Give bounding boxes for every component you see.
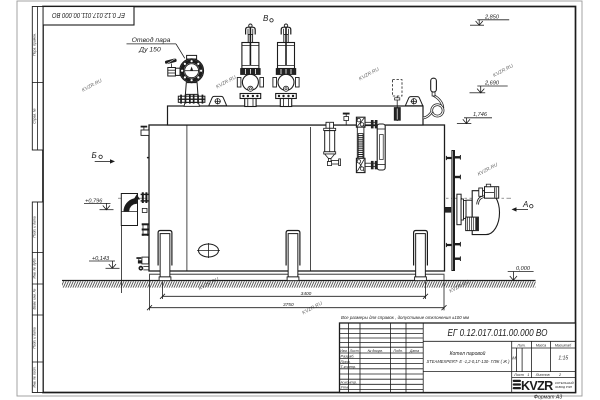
svg-text:3750: 3750 <box>283 302 294 308</box>
svg-text:Подп.: Подп. <box>394 349 403 353</box>
svg-text:1:15: 1:15 <box>558 355 568 361</box>
svg-text:М: М <box>512 356 516 361</box>
svg-text:Листов: Листов <box>535 373 550 377</box>
svg-text:Отвод пара: Отвод пара <box>132 36 171 44</box>
svg-text:Утв.: Утв. <box>341 385 350 390</box>
svg-text:А: А <box>522 200 528 209</box>
svg-text:Т.контр.: Т.контр. <box>341 364 357 369</box>
svg-text:1,746: 1,746 <box>473 112 488 118</box>
svg-text:Перв. примен.: Перв. примен. <box>33 33 37 56</box>
svg-text:Все размеры для справок , допу: Все размеры для справок , допустимые отк… <box>341 315 470 320</box>
svg-text:Лит.: Лит. <box>516 343 525 347</box>
svg-text:Инв. № дубл.: Инв. № дубл. <box>33 258 37 279</box>
svg-text:Лист: Лист <box>513 373 524 377</box>
svg-text:Ду 150: Ду 150 <box>138 47 161 54</box>
svg-text:Изм.: Изм. <box>340 349 347 353</box>
svg-text:В: В <box>263 14 269 23</box>
svg-text:ЕГ 0.12.017.011.00.000 ВО: ЕГ 0.12.017.011.00.000 ВО <box>52 11 125 20</box>
svg-text:STEAMEXPERT- Е -1,2-0,1Г-130-: STEAMEXPERT- Е -1,2-0,1Г-130- ГЛЖ ( Ж ) <box>427 359 510 365</box>
svg-text:Взам. инв. №: Взам. инв. № <box>33 288 37 309</box>
svg-text:Котел паровой: Котел паровой <box>450 350 486 357</box>
svg-text:1: 1 <box>527 373 529 377</box>
svg-text:KVZR: KVZR <box>521 379 553 393</box>
svg-text:Справ. №: Справ. № <box>33 108 37 124</box>
svg-text:ЗАВОД РЭП: ЗАВОД РЭП <box>555 385 572 389</box>
svg-text:Дата: Дата <box>409 349 419 353</box>
svg-text:Подп. и дата: Подп. и дата <box>33 327 37 348</box>
svg-text:Масштаб: Масштаб <box>555 343 572 347</box>
svg-text:3400: 3400 <box>301 291 312 297</box>
svg-text:Подп. и дата: Подп. и дата <box>33 216 37 237</box>
svg-text:Разраб.: Разраб. <box>341 354 355 359</box>
svg-text:№ докум.: № докум. <box>367 349 382 353</box>
svg-text:ЕГ 0.12.017.011.00.000 ВО: ЕГ 0.12.017.011.00.000 ВО <box>448 328 548 339</box>
svg-text:Инв. № подл.: Инв. № подл. <box>33 366 37 387</box>
svg-text:Б: Б <box>92 151 97 160</box>
svg-text:Масса: Масса <box>536 343 546 347</box>
svg-text:Лист: Лист <box>349 349 359 353</box>
svg-text:Формат А3: Формат А3 <box>534 395 562 400</box>
